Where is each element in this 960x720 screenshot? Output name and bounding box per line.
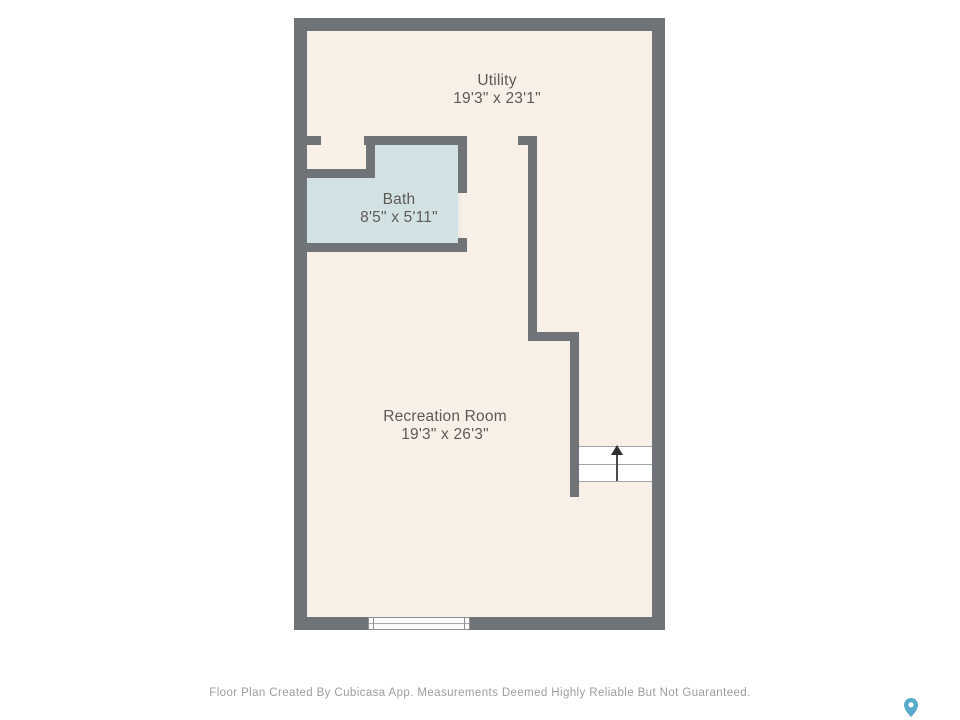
window-symbol [368, 617, 470, 630]
room-label-bath: Bath 8'5" x 5'11" [360, 191, 438, 227]
room-label-utility: Utility 19'3" x 23'1" [453, 72, 541, 108]
window-endcap-left [373, 618, 374, 629]
interior-floor [307, 31, 652, 617]
room-label-recreation: Recreation Room 19'3" x 26'3" [383, 408, 507, 444]
wall-bath-bottom [307, 243, 467, 252]
room-dimensions: 19'3" x 26'3" [383, 426, 507, 444]
stairs-up-arrow-icon [611, 445, 623, 455]
outer-wall-top [294, 18, 665, 31]
wall-bath-right-upper [458, 145, 467, 193]
cubicasa-pin-icon [904, 698, 918, 717]
stairs-direction-arrow-stem [616, 455, 618, 481]
room-dimensions: 19'3" x 23'1" [453, 90, 541, 108]
room-name: Bath [360, 191, 438, 209]
wall-stair-jog-vertical [570, 341, 579, 497]
wall-bath-right-lower [458, 238, 467, 252]
room-dimensions: 8'5" x 5'11" [360, 209, 438, 227]
staircase [579, 446, 652, 482]
bath-doorway-threshold [458, 193, 461, 238]
room-name: Utility [453, 72, 541, 90]
outer-wall-bottom [294, 617, 665, 630]
wall-bath-notch-horizontal [307, 169, 375, 178]
outer-wall-right [652, 18, 665, 630]
wall-hallway-vertical [528, 136, 537, 341]
floor-plan-canvas: Utility 19'3" x 23'1" Bath 8'5" x 5'11" … [0, 0, 960, 720]
wall-bath-top [364, 136, 467, 145]
window-midline [369, 623, 469, 624]
footer-disclaimer: Floor Plan Created By Cubicasa App. Meas… [0, 687, 960, 699]
wall-stub-left-of-doorway [307, 136, 321, 145]
room-name: Recreation Room [383, 408, 507, 426]
window-endcap-right [464, 618, 465, 629]
wall-stair-jog-horizontal [528, 332, 579, 341]
outer-wall-left [294, 18, 307, 630]
